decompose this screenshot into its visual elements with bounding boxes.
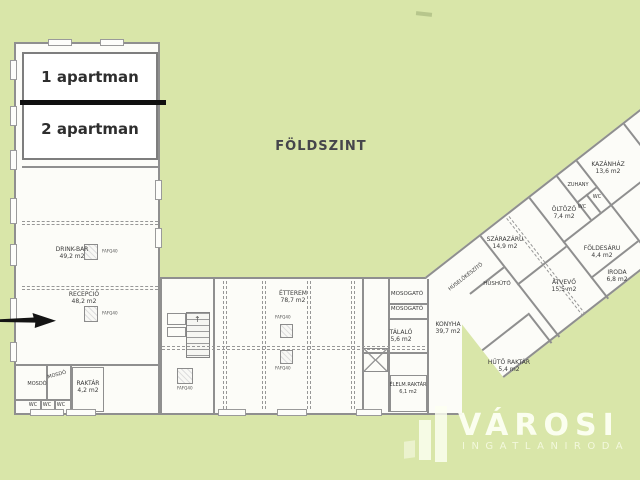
- wall: [388, 303, 427, 305]
- scan-speck: [416, 11, 432, 17]
- room-label-konyha: KONYHA 39,7 m2: [435, 322, 460, 335]
- dashed-gridline: [307, 281, 311, 409]
- room-label-atvevo: ÁTVEVŐ 15,5 m2: [552, 280, 577, 293]
- wall: [482, 314, 529, 351]
- window: [10, 244, 17, 266]
- dashed-gridline: [351, 281, 355, 409]
- building-icon-bar: [419, 420, 431, 460]
- room-label-wc-diag-2: WC: [578, 204, 586, 211]
- room-label-mosogato-1: MOSOGATÓ: [391, 291, 423, 298]
- column-label: FAFQ40: [275, 367, 291, 371]
- building-icon-bar: [404, 440, 415, 459]
- column-square: [280, 324, 293, 338]
- dashed-gridline: [22, 221, 158, 225]
- stairs: ↑: [186, 312, 210, 358]
- window: [155, 228, 162, 248]
- room-label-wc-2: WC: [43, 402, 51, 409]
- room-label-drink-bar: DRINK-BAR 49,2 m2: [56, 247, 89, 260]
- wall: [623, 124, 640, 226]
- building-icon-bar: [435, 406, 447, 462]
- room-label-mosogato-2: MOSOGATÓ: [391, 306, 423, 313]
- stairs-up-arrow-icon: ↑: [194, 315, 201, 324]
- room-label-wc-1: WC: [29, 402, 37, 409]
- window: [10, 150, 17, 170]
- room-label-etterem: ÉTTEREM 78,7 m2: [279, 291, 307, 304]
- column-square: [84, 306, 98, 322]
- room-label-foldesaru: FÖLDESÁRU 4,4 m2: [584, 246, 621, 259]
- room-label-elelm-raktar: ÉLELM.RAKTÁR 6,1 m2: [390, 382, 427, 395]
- room-label-szarazaru: SZÁRAZÁRU 14,9 m2: [487, 237, 524, 250]
- column-square: [177, 368, 193, 384]
- wall: [16, 399, 71, 401]
- apartment-divider: [20, 100, 166, 105]
- room-label-oltozo: ÖLTÖZŐ 7,4 m2: [552, 207, 576, 220]
- dashed-gridline: [162, 346, 425, 350]
- watermark-brand: VÁROSI: [458, 408, 620, 443]
- watermark-tagline: INGATLANIRODA: [462, 441, 629, 452]
- room-label-hushuto: HÚSHŰTŐ: [483, 281, 511, 288]
- floor-title: FÖLDSZINT: [256, 139, 386, 154]
- window: [48, 39, 72, 46]
- room-label-talalo: TÁLALÓ 5,6 m2: [390, 330, 413, 343]
- reception-desk: [167, 313, 186, 325]
- floor-plan-scan: 1 apartman 2 apartman FÖLDSZINT FAFQ40 F…: [0, 0, 640, 480]
- window: [10, 342, 17, 362]
- window: [277, 409, 307, 416]
- apartment-2-label: 2 apartman: [24, 120, 156, 138]
- window: [356, 409, 382, 416]
- wall: [22, 166, 158, 168]
- apartment-box: 1 apartman 2 apartman: [22, 52, 158, 160]
- window: [66, 409, 96, 416]
- window: [155, 180, 162, 200]
- dashed-gridline: [22, 286, 158, 290]
- room-label-wc-3: WC: [57, 402, 65, 409]
- room-label-wc-diag-1: WC: [593, 194, 601, 201]
- column-square: [280, 350, 293, 364]
- wall: [388, 318, 427, 320]
- room-label-zuhany: ZUHANY: [567, 182, 588, 189]
- wall: [362, 352, 427, 354]
- column-label: FAFQ40: [102, 312, 118, 316]
- dashed-gridline: [506, 216, 585, 316]
- room-label-raktar: RAKTÁR 4,2 m2: [77, 381, 100, 394]
- building-icon: [395, 400, 455, 470]
- room-label-mosdo-1: MOSDÓ: [27, 381, 46, 388]
- window: [100, 39, 124, 46]
- room-label-kazanhaz: KAZÁNHÁZ 13,6 m2: [591, 162, 624, 175]
- column-label: FAFQ40: [177, 387, 193, 391]
- apartment-1-label: 1 apartman: [24, 68, 156, 86]
- dashed-gridline: [223, 281, 227, 409]
- room-label-recepcio: RECEPCIÓ 48,2 m2: [69, 292, 99, 305]
- room-label-huto-raktar: HŰTŐ RAKTÁR 5,4 m2: [488, 360, 530, 373]
- window: [10, 298, 17, 320]
- window: [10, 106, 17, 126]
- reception-desk: [167, 327, 186, 337]
- wall: [16, 364, 158, 366]
- wall: [427, 279, 429, 413]
- window: [30, 409, 64, 416]
- window: [218, 409, 246, 416]
- window: [10, 198, 17, 224]
- dashed-gridline: [262, 281, 266, 409]
- column-label: FAFQ40: [275, 316, 291, 320]
- watermark-logo: VÁROSI INGATLANIRODA: [395, 400, 640, 475]
- window: [10, 60, 17, 80]
- wall: [527, 313, 552, 344]
- column-label: FAFQ40: [102, 250, 118, 254]
- room-label-iroda: IRODA 6,8 m2: [606, 270, 627, 283]
